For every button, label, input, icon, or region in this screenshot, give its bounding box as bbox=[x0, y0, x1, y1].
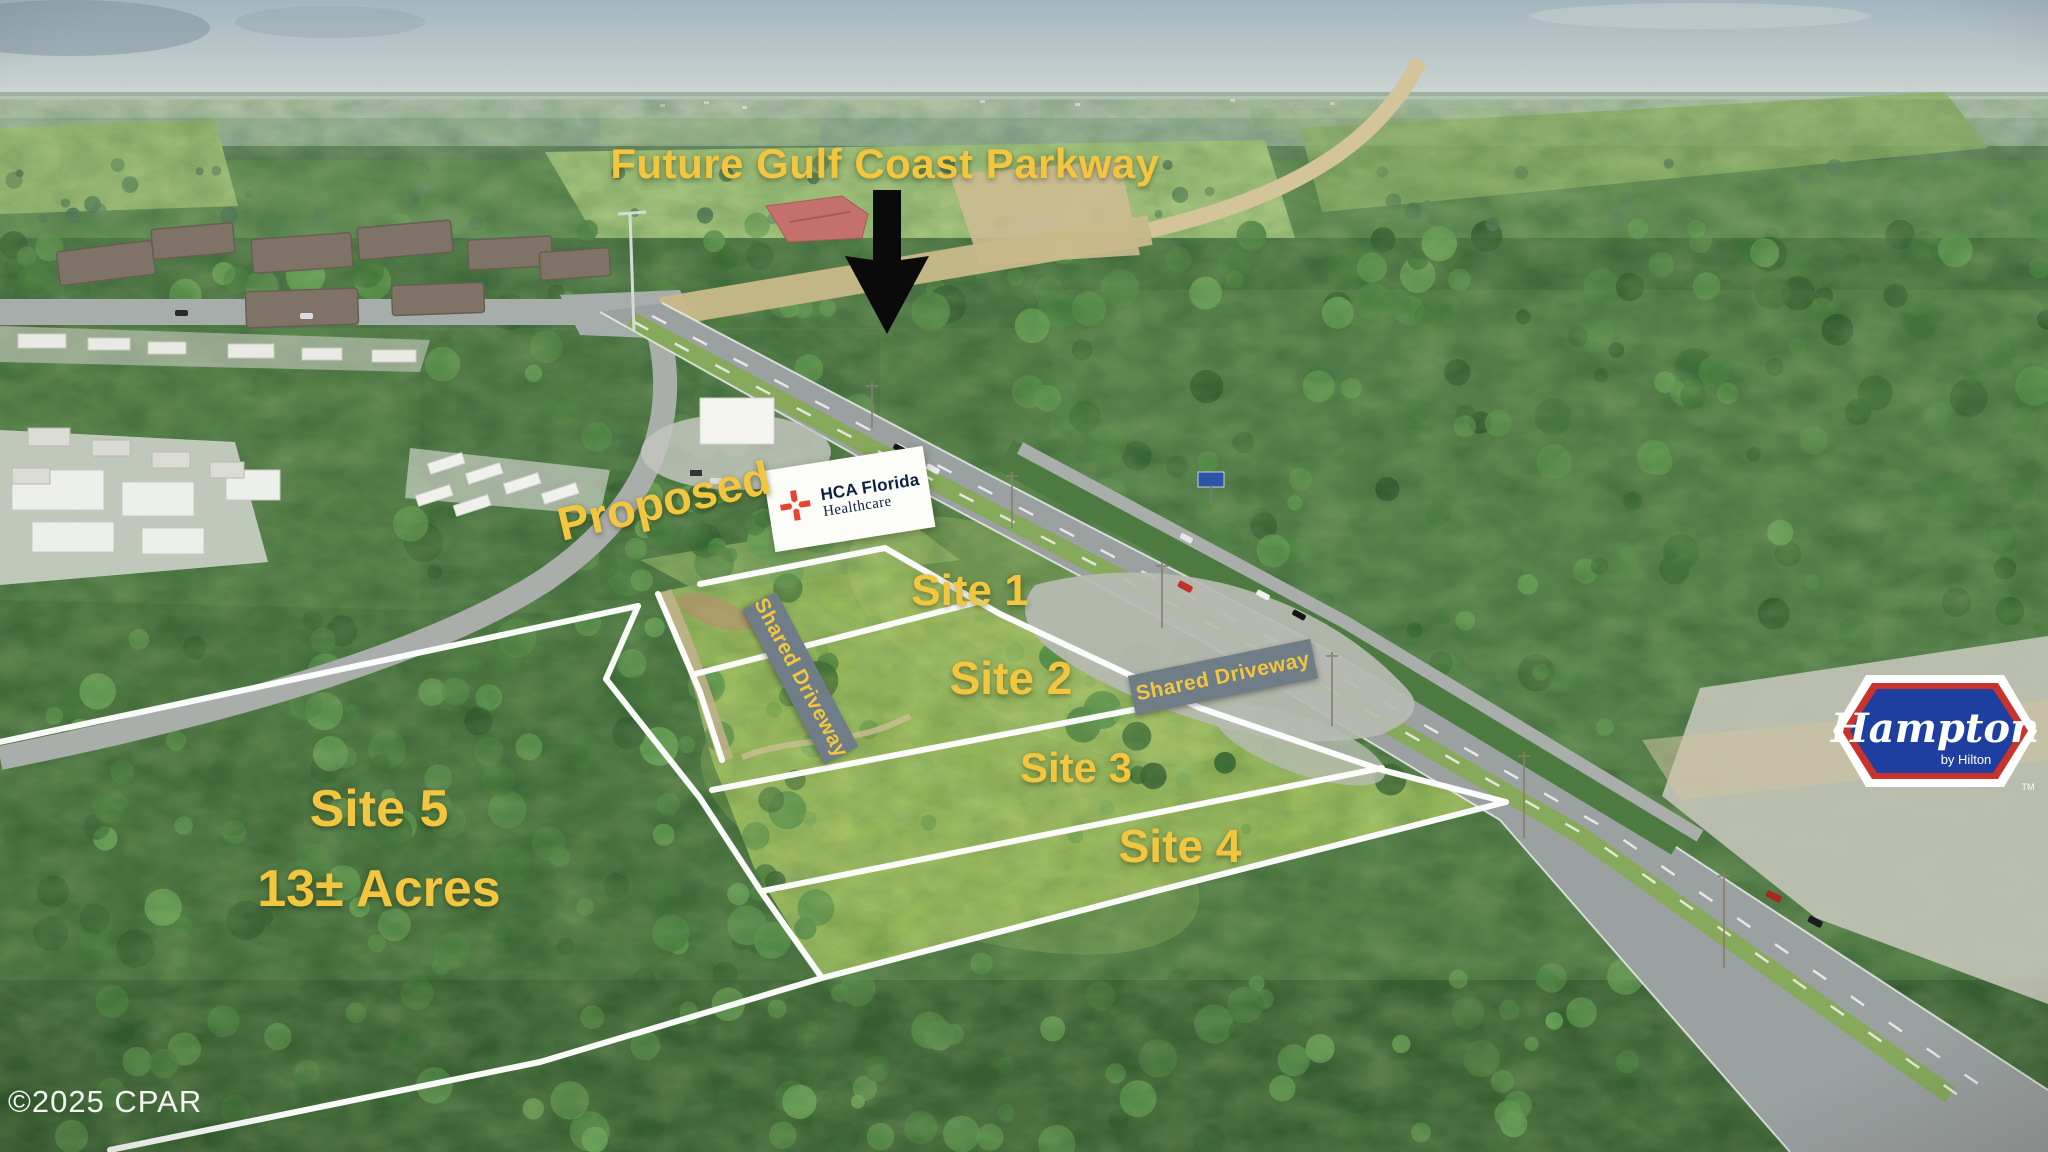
site-4-label: Site 4 bbox=[1100, 822, 1260, 870]
hampton-wordmark: Hampton bbox=[1830, 705, 2039, 752]
site-1-label: Site 1 bbox=[895, 568, 1045, 614]
hca-cross-icon bbox=[774, 484, 816, 530]
hampton-byline: by Hilton bbox=[1941, 752, 1992, 767]
site-5-label: Site 5 bbox=[214, 782, 544, 837]
hampton-trademark: TM bbox=[2022, 782, 2035, 792]
copyright-watermark: ©2025 CPAR bbox=[8, 1084, 202, 1120]
site-3-label: Site 3 bbox=[996, 746, 1156, 790]
hampton-by-hilton-badge: Hampton by Hilton TM bbox=[1830, 668, 2040, 794]
site-5-acreage-label: 13± Acres bbox=[214, 862, 544, 917]
aerial-listing-photo: Future Gulf Coast Parkway Proposed Site … bbox=[0, 0, 2048, 1152]
future-parkway-title: Future Gulf Coast Parkway bbox=[535, 142, 1235, 186]
site-2-label: Site 2 bbox=[931, 654, 1091, 702]
